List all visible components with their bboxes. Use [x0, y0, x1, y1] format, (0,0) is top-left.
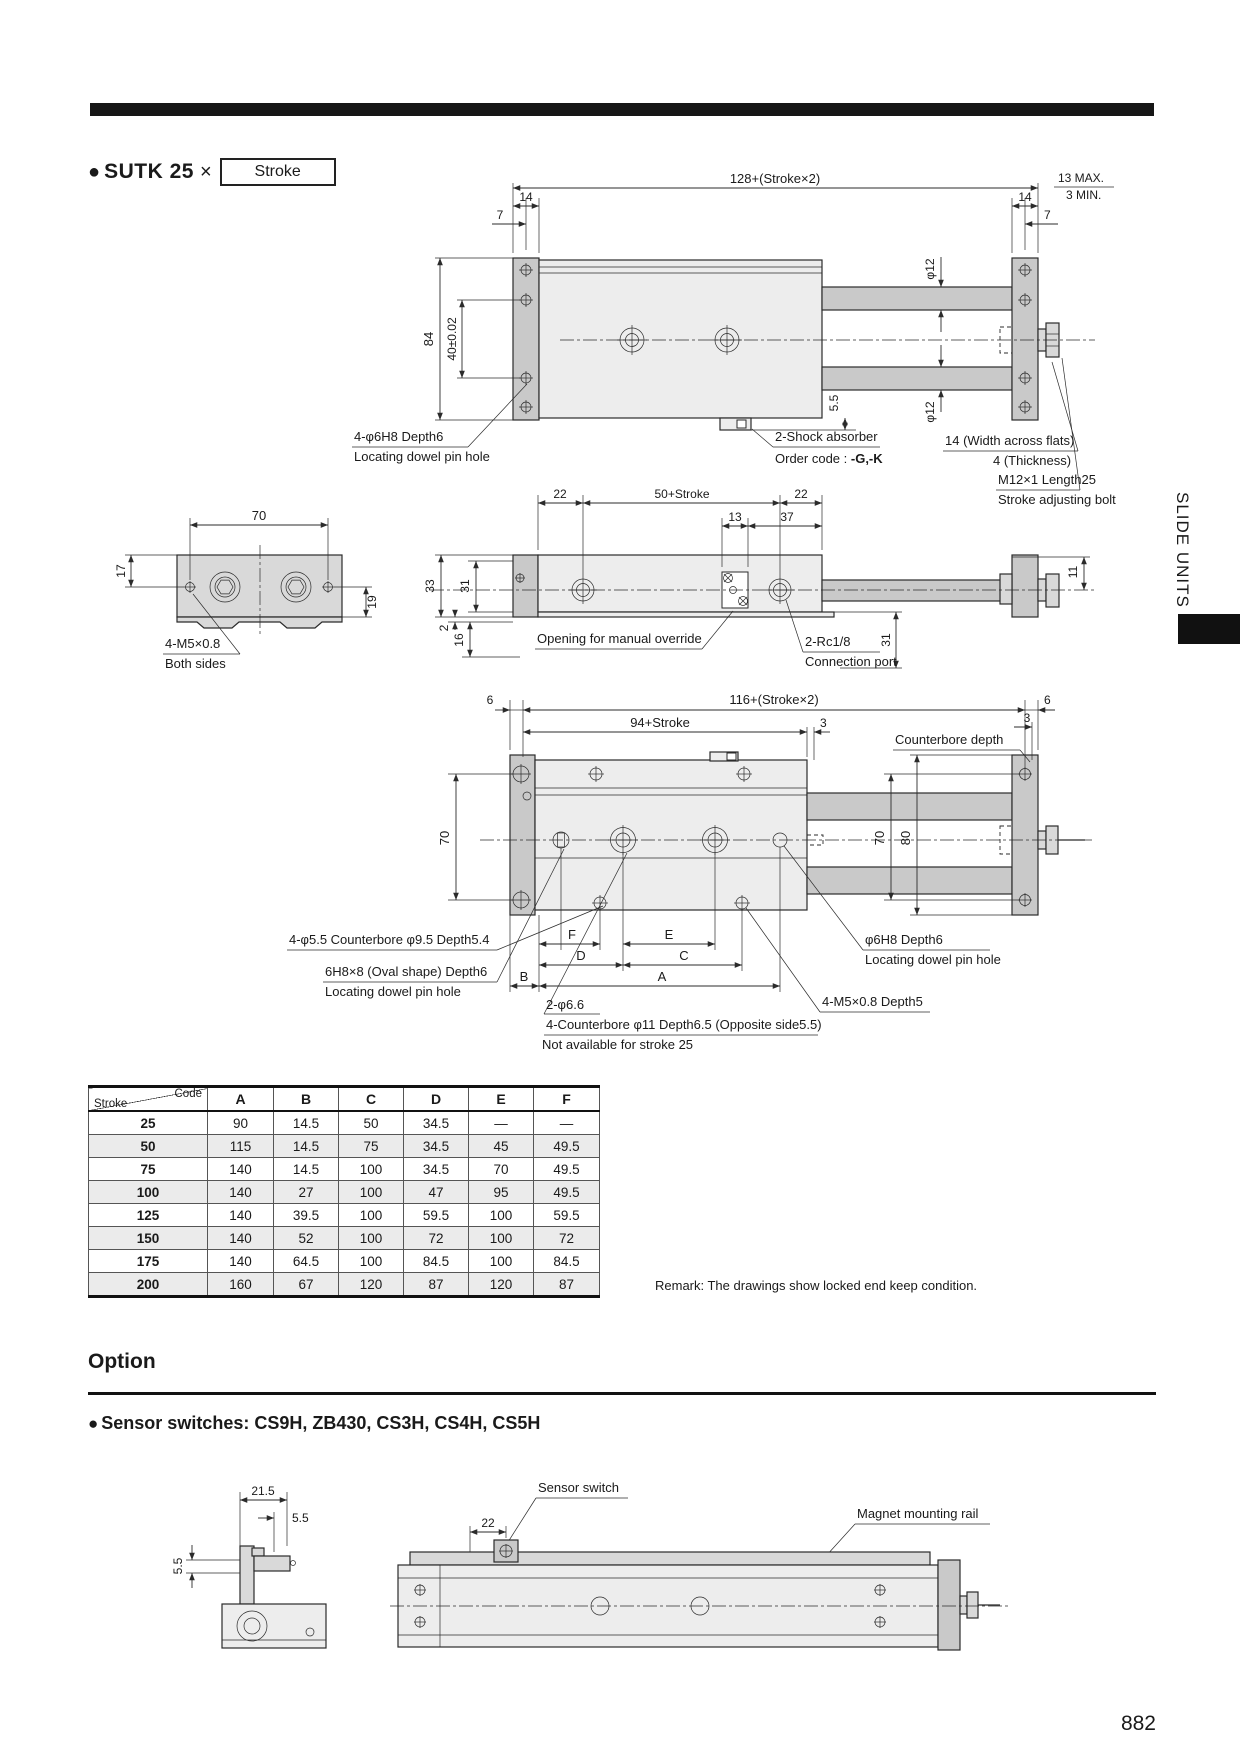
value-cell: 47 [404, 1181, 469, 1204]
label-oval-dowel-2: Locating dowel pin hole [325, 984, 461, 999]
dim-22-sensor: 22 [481, 1516, 495, 1530]
value-cell: 100 [339, 1227, 404, 1250]
value-cell: — [534, 1111, 600, 1135]
label-magnet-rail: Magnet mounting rail [857, 1506, 979, 1521]
value-cell: 100 [339, 1181, 404, 1204]
dim-116-overall: 116+(Stroke×2) [729, 692, 818, 707]
col-D: D [404, 1087, 469, 1112]
sensor-body-end [254, 1556, 290, 1571]
dim-3-left: 3 [820, 716, 827, 730]
piston-rod [822, 580, 1012, 601]
label-thickness: 4 (Thickness) [993, 453, 1071, 468]
option-heading: Option [88, 1350, 156, 1374]
value-cell: 120 [469, 1273, 534, 1297]
stroke-cell: 50 [89, 1135, 208, 1158]
value-cell: 100 [469, 1227, 534, 1250]
catalog-page: ● SUTK 25 × Stroke SLIDE UNITS [0, 0, 1240, 1754]
stroke-cell: 175 [89, 1250, 208, 1273]
dim-5-5-vertical: 5.5 [171, 1557, 185, 1574]
label-counterbore-11: 4-Counterbore φ11 Depth6.5 (Opposite sid… [546, 1017, 822, 1032]
value-cell: 49.5 [534, 1158, 600, 1181]
label-manual-override: Opening for manual override [537, 631, 702, 646]
value-cell: 115 [208, 1135, 274, 1158]
value-cell: 100 [339, 1158, 404, 1181]
slide-body [539, 260, 822, 418]
label-m5-both-sides: 4-M5×0.8 [165, 636, 220, 651]
corner-code-label: Code [175, 1088, 203, 1100]
value-cell: — [469, 1111, 534, 1135]
label-plan-dowel: φ6H8 Depth6 [865, 932, 943, 947]
plan-left-cap [510, 755, 535, 915]
dim-84: 84 [421, 332, 436, 346]
side-tab-label: SLIDE UNITS [1172, 492, 1192, 608]
table-row: 259014.55034.5—— [89, 1111, 600, 1135]
dim-21-5: 21.5 [251, 1484, 275, 1498]
value-cell: 50 [339, 1111, 404, 1135]
dim-13-max: 13 MAX. [1058, 171, 1104, 185]
value-cell: 140 [208, 1227, 274, 1250]
dim-50-stroke: 50+Stroke [654, 487, 709, 501]
dim-2: 2 [437, 624, 451, 631]
dim-E: E [665, 927, 674, 942]
dim-40-tol: 40±0.02 [445, 317, 459, 361]
table-row: 17514064.510084.510084.5 [89, 1250, 600, 1273]
value-cell: 84.5 [534, 1250, 600, 1273]
value-cell: 100 [469, 1204, 534, 1227]
value-cell: 100 [469, 1250, 534, 1273]
stroke-cell: 100 [89, 1181, 208, 1204]
label-width-across-flats: 14 (Width across flats) [945, 433, 1074, 448]
plan-rod-bottom [807, 867, 1012, 894]
table-row: 5011514.57534.54549.5 [89, 1135, 600, 1158]
label-stroke-adjusting-bolt: Stroke adjusting bolt [998, 492, 1116, 507]
col-E: E [469, 1087, 534, 1112]
dim-31-right: 31 [879, 633, 893, 647]
side-view: 70 17 19 4-M5×0.8 Both sides [114, 508, 379, 671]
top-left-cap [513, 555, 538, 617]
dim-13: 13 [728, 510, 742, 524]
dimension-table: Code Stroke A B C D E F 259014.55034.5——… [88, 1085, 600, 1298]
sensor-end-view: 21.5 5.5 5.5 [171, 1484, 326, 1648]
dim-14-right: 14 [1018, 190, 1032, 204]
dim-7-left: 7 [497, 208, 504, 222]
top-view: 22 50+Stroke 22 13 37 33 31 2 16 [423, 487, 1095, 669]
label-counterbore-55: 4-φ5.5 Counterbore φ9.5 Depth5.4 [289, 932, 489, 947]
value-cell: 39.5 [274, 1204, 339, 1227]
plan-body [535, 760, 807, 910]
dim-70-side: 70 [252, 508, 266, 523]
label-connection-port: Connection port [805, 654, 897, 669]
dim-70-plan-left: 70 [437, 831, 452, 845]
value-cell: 27 [274, 1181, 339, 1204]
side-index-tab [1178, 614, 1240, 644]
top-rule-bar [90, 103, 1154, 116]
dim-11: 11 [1066, 565, 1080, 578]
table-row: 10014027100479549.5 [89, 1181, 600, 1204]
page-number: 882 [1090, 1712, 1156, 1736]
col-B: B [274, 1087, 339, 1112]
dim-14-left: 14 [519, 190, 533, 204]
front-view: 128+(Stroke×2) 13 MAX. 3 MIN. 14 7 14 7 … [352, 171, 1116, 507]
dim-22-right: 22 [794, 487, 808, 501]
table-corner-cell: Code Stroke [89, 1087, 208, 1112]
value-cell: 140 [208, 1181, 274, 1204]
value-cell: 95 [469, 1181, 534, 1204]
value-cell: 59.5 [534, 1204, 600, 1227]
value-cell: 84.5 [404, 1250, 469, 1273]
dim-overall-length: 128+(Stroke×2) [730, 171, 820, 186]
label-dowel-hole-2: Locating dowel pin hole [354, 449, 490, 464]
stroke-cell: 75 [89, 1158, 208, 1181]
remark-text: Remark: The drawings show locked end kee… [655, 1278, 977, 1293]
dim-70-plan-right: 70 [872, 831, 887, 845]
dim-37: 37 [780, 510, 794, 524]
label-m5-depth5: 4-M5×0.8 Depth5 [822, 994, 923, 1009]
value-cell: 45 [469, 1135, 534, 1158]
label-rc18: 2-Rc1/8 [805, 634, 851, 649]
col-A: A [208, 1087, 274, 1112]
value-cell: 120 [339, 1273, 404, 1297]
corner-stroke-label: Stroke [94, 1098, 127, 1110]
stroke-cell: 25 [89, 1111, 208, 1135]
value-cell: 140 [208, 1204, 274, 1227]
dim-31-left: 31 [458, 579, 472, 593]
label-dowel-hole: 4-φ6H8 Depth6 [354, 429, 443, 444]
top-right-block [1012, 555, 1038, 617]
value-cell: 14.5 [274, 1158, 339, 1181]
value-cell: 34.5 [404, 1158, 469, 1181]
label-counterbore-depth: Counterbore depth [895, 732, 1003, 747]
value-cell: 87 [404, 1273, 469, 1297]
label-oval-dowel: 6H8×8 (Oval shape) Depth6 [325, 964, 487, 979]
label-sensor-switch: Sensor switch [538, 1480, 619, 1495]
plan-rod-top [807, 793, 1012, 820]
value-cell: 14.5 [274, 1135, 339, 1158]
dim-7-right: 7 [1044, 208, 1051, 222]
label-bolt-spec: M12×1 Length25 [998, 472, 1096, 487]
dim-80: 80 [898, 831, 913, 845]
table-header-row: Code Stroke A B C D E F [89, 1087, 600, 1112]
dim-F: F [568, 927, 576, 942]
right-end-plate [1012, 258, 1038, 420]
end-plate-side [938, 1560, 960, 1650]
order-code-prefix: Order code : [775, 451, 851, 466]
dim-6-left: 6 [487, 693, 494, 707]
unit-base-end [222, 1604, 326, 1648]
value-cell: 14.5 [274, 1111, 339, 1135]
value-cell: 160 [208, 1273, 274, 1297]
plan-view: 6 116+(Stroke×2) 6 94+Stroke 3 3 Counter… [287, 692, 1095, 1052]
option-rule [88, 1392, 1156, 1395]
value-cell: 59.5 [404, 1204, 469, 1227]
dim-phi12-bottom: φ12 [923, 401, 937, 422]
value-cell: 140 [208, 1158, 274, 1181]
dim-33: 33 [423, 579, 437, 593]
dim-C: C [679, 948, 688, 963]
magnet-mounting-rail [410, 1552, 930, 1565]
dim-17: 17 [114, 564, 128, 578]
guide-rod-top [822, 287, 1012, 310]
table-row: 150140521007210072 [89, 1227, 600, 1250]
dim-6-right: 6 [1044, 693, 1051, 707]
dim-B: B [520, 969, 529, 984]
side-body [177, 555, 342, 617]
stroke-cell: 125 [89, 1204, 208, 1227]
dim-3-min: 3 MIN. [1066, 188, 1101, 202]
label-both-sides: Both sides [165, 656, 226, 671]
value-cell: 52 [274, 1227, 339, 1250]
label-plan-dowel-2: Locating dowel pin hole [865, 952, 1001, 967]
left-end-plate [513, 258, 539, 420]
sensor-option-drawings: 21.5 5.5 5.5 Sensor switch 22 [80, 1455, 1160, 1695]
dim-22-left: 22 [553, 487, 567, 501]
value-cell: 34.5 [404, 1135, 469, 1158]
value-cell: 87 [534, 1273, 600, 1297]
label-shock-absorber: 2-Shock absorber [775, 429, 878, 444]
dim-19: 19 [365, 595, 379, 609]
value-cell: 72 [534, 1227, 600, 1250]
stroke-cell: 200 [89, 1273, 208, 1297]
dim-94-stroke: 94+Stroke [630, 715, 690, 730]
dim-16: 16 [452, 633, 466, 647]
value-cell: 64.5 [274, 1250, 339, 1273]
value-cell: 100 [339, 1204, 404, 1227]
sensor-switches-text: Sensor switches: CS9H, ZB430, CS3H, CS4H… [101, 1413, 540, 1434]
value-cell: 90 [208, 1111, 274, 1135]
table-row: 200160671208712087 [89, 1273, 600, 1297]
technical-drawings: 128+(Stroke×2) 13 MAX. 3 MIN. 14 7 14 7 … [80, 150, 1160, 1060]
value-cell: 49.5 [534, 1135, 600, 1158]
guide-rod-bottom [822, 367, 1012, 390]
value-cell: 34.5 [404, 1111, 469, 1135]
value-cell: 72 [404, 1227, 469, 1250]
dim-3-counterbore: 3 [1024, 711, 1031, 725]
order-code-values: -G,-K [851, 451, 883, 466]
col-C: C [339, 1087, 404, 1112]
col-F: F [534, 1087, 600, 1112]
value-cell: 70 [469, 1158, 534, 1181]
dim-D: D [576, 948, 585, 963]
value-cell: 140 [208, 1250, 274, 1273]
table-row: 12514039.510059.510059.5 [89, 1204, 600, 1227]
value-cell: 49.5 [534, 1181, 600, 1204]
sensor-switches-heading: ● Sensor switches: CS9H, ZB430, CS3H, CS… [88, 1413, 540, 1434]
value-cell: 100 [339, 1250, 404, 1273]
dim-5-5: 5.5 [827, 394, 841, 411]
label-not-available: Not available for stroke 25 [542, 1037, 693, 1052]
value-cell: 75 [339, 1135, 404, 1158]
sensor-side-view: Sensor switch 22 Magnet mounting rail [390, 1480, 1010, 1650]
table-row: 7514014.510034.57049.5 [89, 1158, 600, 1181]
dim-5-5-horizontal: 5.5 [292, 1511, 309, 1525]
stroke-cell: 150 [89, 1227, 208, 1250]
label-order-code: Order code : -G,-K [775, 451, 883, 466]
value-cell: 67 [274, 1273, 339, 1297]
bullet-icon: ● [88, 1414, 98, 1434]
dim-A: A [658, 969, 667, 984]
dim-phi12-top: φ12 [923, 258, 937, 279]
